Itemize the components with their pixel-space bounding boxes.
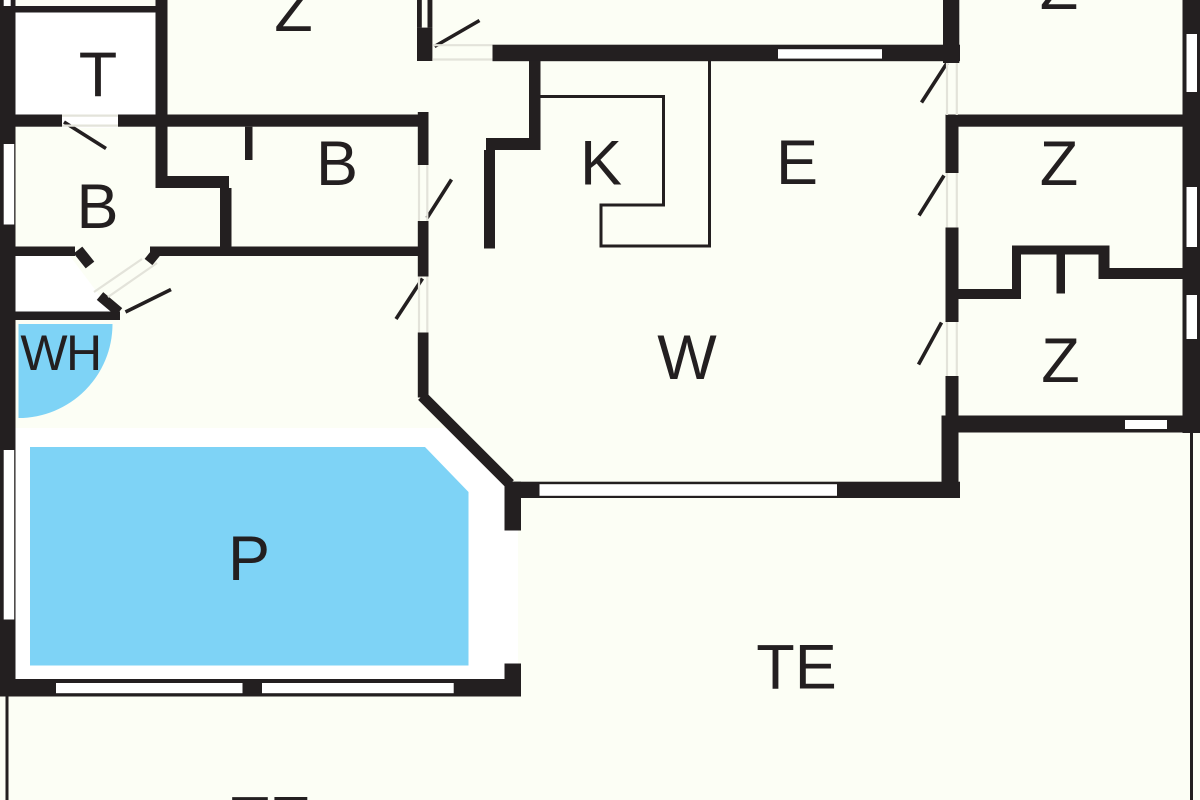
svg-text:K: K	[580, 129, 622, 199]
svg-text:Z: Z	[1041, 326, 1079, 396]
svg-text:WH: WH	[20, 325, 100, 381]
svg-text:Z: Z	[1040, 0, 1078, 23]
svg-text:Z: Z	[274, 0, 312, 45]
svg-text:B: B	[316, 129, 358, 199]
svg-text:B: B	[76, 172, 118, 242]
svg-text:Z: Z	[1040, 129, 1078, 199]
svg-text:W: W	[657, 323, 717, 393]
svg-text:E: E	[776, 128, 818, 198]
svg-text:T: T	[79, 40, 117, 110]
svg-text:P: P	[228, 524, 270, 594]
svg-text:TE: TE	[756, 633, 837, 703]
svg-text:TE: TE	[231, 785, 312, 800]
